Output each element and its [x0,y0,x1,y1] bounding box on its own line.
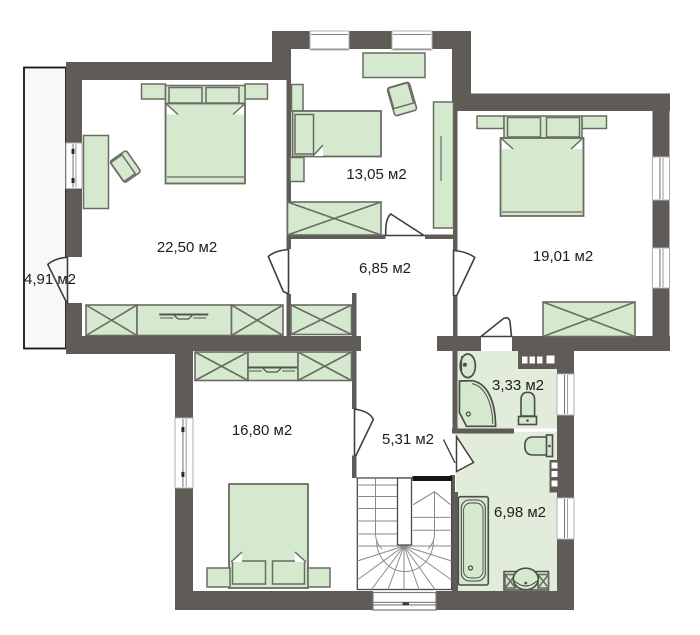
svg-text:13,05 м2: 13,05 м2 [346,166,406,183]
svg-text:5,31 м2: 5,31 м2 [382,431,434,448]
svg-text:6,85 м2: 6,85 м2 [359,260,411,277]
svg-text:16,80 м2: 16,80 м2 [232,422,292,439]
svg-text:19,01 м2: 19,01 м2 [533,248,593,265]
svg-text:3,33 м2: 3,33 м2 [492,377,544,394]
svg-text:22,50 м2: 22,50 м2 [157,239,217,256]
svg-text:6,98 м2: 6,98 м2 [494,504,546,521]
svg-text:4,91 м2: 4,91 м2 [24,271,76,288]
